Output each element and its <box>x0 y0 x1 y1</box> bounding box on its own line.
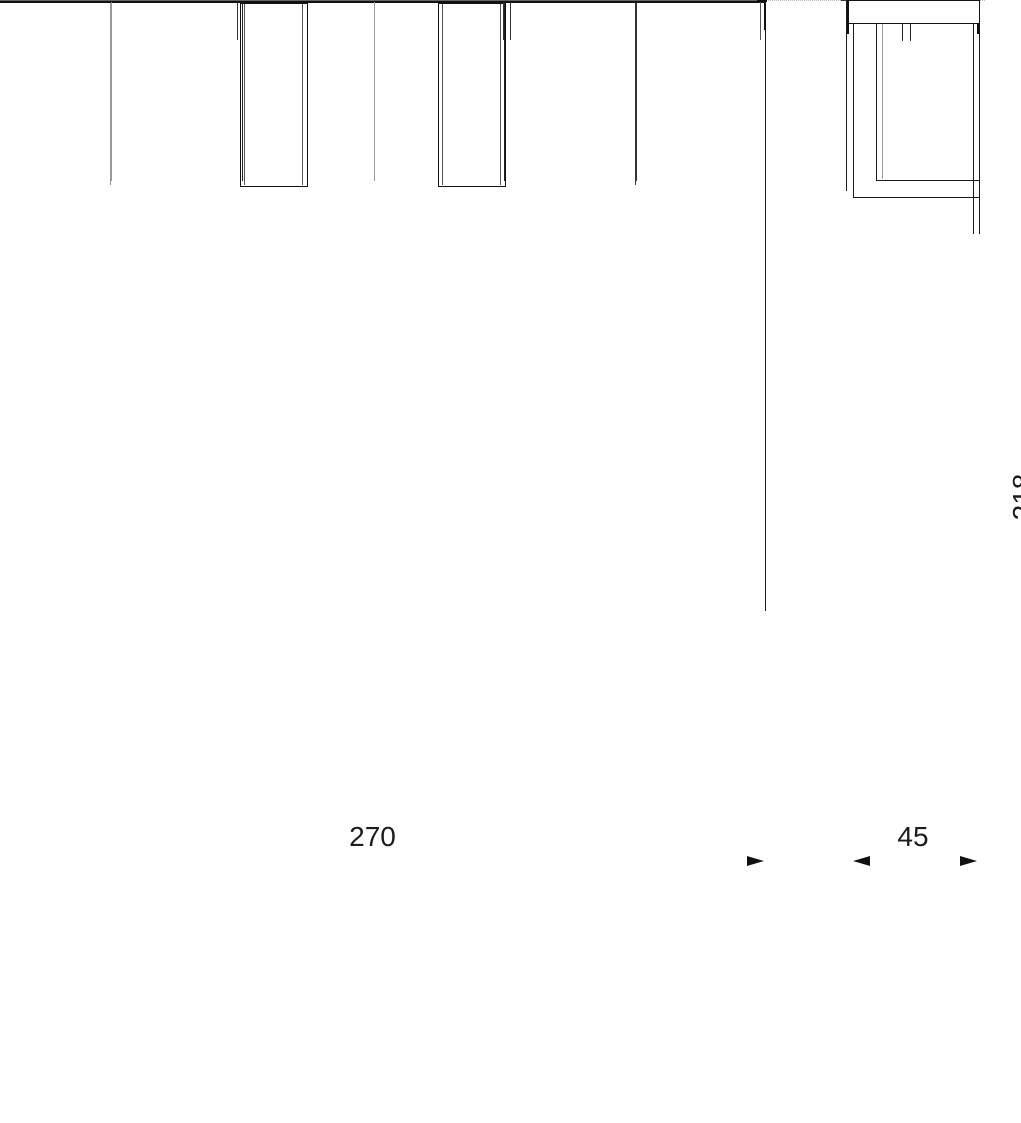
base-door-divider-3 <box>374 0 375 181</box>
dim-270-arrowhead-right <box>747 856 764 866</box>
side-base-cabinet-body <box>853 0 980 198</box>
open-shelf-unit-2 <box>438 0 506 187</box>
right-side-panel-edge <box>765 0 766 611</box>
base-door-divider-2 <box>242 0 243 181</box>
dim-45-arrowhead-right <box>960 856 977 866</box>
shelf-unit-2-inner-left <box>442 0 443 185</box>
drawer-divider-1a <box>237 0 238 40</box>
shelf-unit-1-inner-left <box>244 0 245 185</box>
dim-45-label: 45 <box>880 822 946 852</box>
dim-height-label: 218 <box>1008 467 1021 527</box>
base-door-divider-4 <box>504 0 505 181</box>
drawer-divider-2b <box>510 0 511 40</box>
dim-270-label: 270 <box>330 822 415 852</box>
base-door-divider-5 <box>636 0 637 181</box>
open-shelf-unit-1 <box>240 0 308 187</box>
dim-270-line <box>0 0 757 1</box>
side-countertop-slab <box>848 0 980 24</box>
shelf-unit-2-inner-right <box>500 0 501 185</box>
dim-270-extension-tick <box>764 0 766 30</box>
shelf-unit-1-inner-right <box>302 0 303 185</box>
drawer-band-right-end <box>760 0 761 40</box>
base-door-divider-1 <box>111 0 112 181</box>
dim-45-arrowhead-left <box>853 856 870 866</box>
technical-drawing-canvas: 270 45 218 <box>0 0 1021 1123</box>
